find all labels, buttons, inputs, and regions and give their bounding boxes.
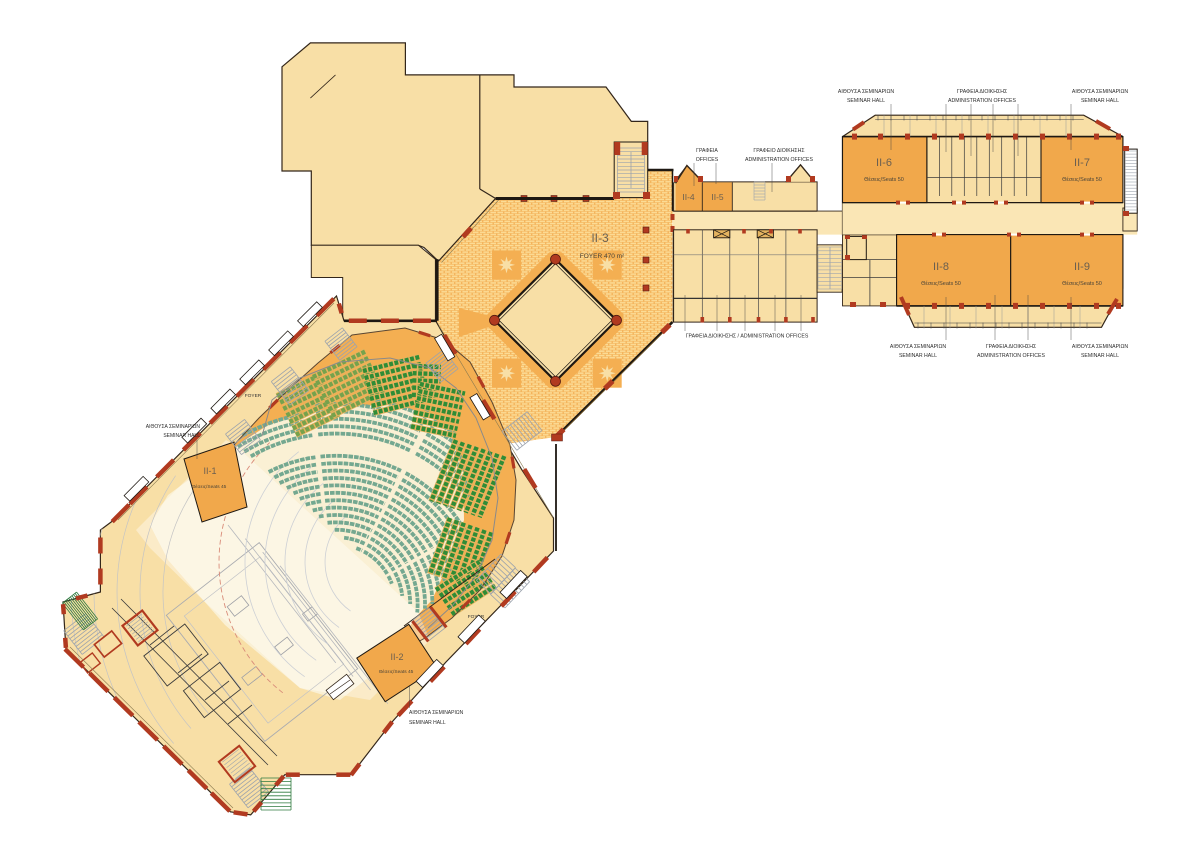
svg-text:ADMINISTRATION OFFICES: ADMINISTRATION OFFICES: [977, 353, 1045, 359]
svg-text:ΓΡΑΦΕΙΑ ΔΙΟΙΚΗΣΗΣ: ΓΡΑΦΕΙΑ ΔΙΟΙΚΗΣΗΣ: [986, 344, 1036, 350]
svg-text:OFFICES: OFFICES: [696, 157, 719, 163]
svg-text:ΓΡΑΦΕΙΑ ΔΙΟΙΚΗΣΗΣ: ΓΡΑΦΕΙΑ ΔΙΟΙΚΗΣΗΣ: [957, 89, 1007, 95]
svg-text:II-8: II-8: [933, 261, 949, 273]
svg-text:ADMINISTRATION OFFICES: ADMINISTRATION OFFICES: [745, 157, 813, 163]
svg-text:SEMINAR HALL: SEMINAR HALL: [847, 98, 885, 104]
svg-text:SEMINAR HALL: SEMINAR HALL: [899, 353, 937, 359]
svg-text:II-2: II-2: [390, 652, 403, 662]
svg-text:SEMINAR HALL: SEMINAR HALL: [409, 720, 446, 726]
svg-text:ΓΡΑΦΕΙΑ: ΓΡΑΦΕΙΑ: [696, 148, 718, 154]
svg-text:II-4: II-4: [682, 192, 695, 202]
svg-text:FOYER: FOYER: [245, 393, 262, 399]
svg-text:ΑΙΘΟΥΣΑ ΣΕΜΙΝΑΡΙΩΝ: ΑΙΘΟΥΣΑ ΣΕΜΙΝΑΡΙΩΝ: [890, 344, 946, 350]
svg-text:II-6: II-6: [876, 157, 892, 169]
svg-text:ΑΙΘΟΥΣΑ ΣΕΜΙΝΑΡΙΩΝ: ΑΙΘΟΥΣΑ ΣΕΜΙΝΑΡΙΩΝ: [1072, 344, 1128, 350]
svg-text:Θέσεις/Seats 50: Θέσεις/Seats 50: [1062, 176, 1102, 183]
svg-text:ΓΡΑΦΕΙΟ ΔΙΟΙΚΗΣΗΣ: ΓΡΑΦΕΙΟ ΔΙΟΙΚΗΣΗΣ: [753, 148, 804, 154]
svg-text:ADMINISTRATION OFFICES: ADMINISTRATION OFFICES: [948, 98, 1016, 104]
svg-text:ΑΙΘΟΥΣΑ ΣΕΜΙΝΑΡΙΩΝ: ΑΙΘΟΥΣΑ ΣΕΜΙΝΑΡΙΩΝ: [1072, 89, 1128, 95]
svg-text:ΑΙΘΟΥΣΑ ΣΕΜΙΝΑΡΙΩΝ: ΑΙΘΟΥΣΑ ΣΕΜΙΝΑΡΙΩΝ: [409, 710, 464, 716]
svg-text:ΓΡΑΦΕΙΑ ΔΙΟΙΚΗΣΗΣ / ADMINISTRA: ΓΡΑΦΕΙΑ ΔΙΟΙΚΗΣΗΣ / ADMINISTRATION OFFIC…: [686, 334, 809, 340]
svg-text:II-9: II-9: [1074, 261, 1090, 273]
svg-text:ΑΙΘΟΥΣΑ ΣΕΜΙΝΑΡΙΩΝ: ΑΙΘΟΥΣΑ ΣΕΜΙΝΑΡΙΩΝ: [146, 424, 201, 430]
svg-text:Θέσεις/Seats 50: Θέσεις/Seats 50: [864, 176, 904, 183]
svg-text:II-7: II-7: [1074, 157, 1090, 169]
svg-text:Θέσεις/Seats 50: Θέσεις/Seats 50: [921, 280, 961, 287]
svg-text:SEMINAR HALL: SEMINAR HALL: [163, 433, 200, 439]
svg-text:Θέσεις/Seats 45: Θέσεις/Seats 45: [379, 668, 414, 675]
svg-text:II-1: II-1: [203, 466, 216, 476]
svg-text:Θέσεις/Seats 50: Θέσεις/Seats 50: [1062, 280, 1102, 287]
svg-text:Θέσεις/Seats 45: Θέσεις/Seats 45: [192, 483, 227, 490]
svg-text:ΑΙΘΟΥΣΑ ΣΕΜΙΝΑΡΙΩΝ: ΑΙΘΟΥΣΑ ΣΕΜΙΝΑΡΙΩΝ: [838, 89, 894, 95]
svg-text:II-5: II-5: [711, 192, 724, 202]
svg-text:SEMINAR HALL: SEMINAR HALL: [1081, 353, 1119, 359]
svg-text:SEMINAR HALL: SEMINAR HALL: [1081, 98, 1119, 104]
svg-text:FOYER 470 m²: FOYER 470 m²: [580, 253, 625, 260]
svg-text:II-3: II-3: [591, 231, 609, 245]
